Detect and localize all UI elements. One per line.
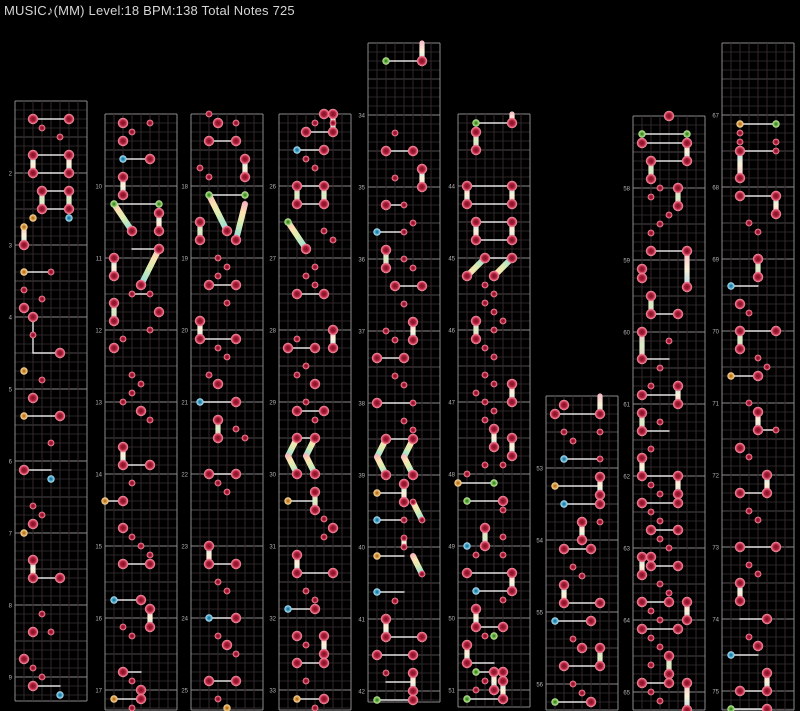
note-pink-large [381, 434, 391, 444]
note-pink-small [392, 130, 399, 137]
note-pink-large [328, 109, 338, 119]
note-pink-small [410, 400, 417, 407]
note-pink-large [762, 614, 772, 624]
note-yellow [454, 479, 461, 486]
note-pink-small [764, 364, 771, 371]
note-pink-large [498, 694, 508, 704]
note-pink-large [145, 622, 155, 632]
note-blue [196, 398, 203, 405]
note-pink-large [118, 190, 128, 200]
note-pink-small [773, 427, 780, 434]
note-pink-small [648, 689, 655, 696]
note-blue [463, 542, 470, 549]
note-pink-small [401, 256, 408, 263]
note-pink-small [233, 651, 240, 658]
measure-number: 41 [358, 618, 365, 624]
note-pink-large [595, 472, 605, 482]
note-yellow [101, 497, 108, 504]
note-pink-large [559, 598, 569, 608]
note-pink-large [471, 604, 481, 614]
note-pink-small [206, 174, 213, 181]
note-pink-small [755, 229, 762, 236]
note-pink-small [215, 579, 222, 586]
note-pink-large [136, 280, 146, 290]
measure-number: 56 [536, 683, 543, 689]
note-pink-small [383, 670, 390, 677]
note-pink-small [215, 255, 222, 262]
note-green [373, 696, 380, 703]
measure-number: 63 [623, 547, 630, 553]
measure-number: 19 [181, 257, 188, 263]
note-pink-large [204, 280, 214, 290]
measure-number: 4 [9, 316, 13, 322]
note-pink-small [129, 633, 136, 640]
chart-canvas: 2345678910111213141516171819202122232425… [0, 0, 800, 711]
note-pink-small [648, 446, 655, 453]
note-pink-large [28, 150, 38, 160]
measure-number: 47 [448, 401, 455, 407]
note-pink-small [129, 390, 136, 397]
note-pink-small [303, 363, 310, 370]
note-pink-large [471, 316, 481, 326]
measure-number: 21 [181, 401, 188, 407]
note-pink-small [482, 399, 489, 406]
measure-number: 71 [712, 402, 719, 408]
note-pink-large [195, 235, 205, 245]
note-pink-small [39, 296, 46, 303]
note-pink-large [595, 490, 605, 500]
note-pink-small [129, 678, 136, 685]
note-pink-large [637, 552, 647, 562]
note-pink-small [579, 690, 586, 697]
note-pink-large [231, 280, 241, 290]
note-pink-small [312, 264, 319, 271]
note-pink-small [597, 456, 604, 463]
song-info-header: MUSIC♪(MM) Level:18 BPM:138 Total Notes … [4, 3, 295, 18]
note-pink-large [673, 525, 683, 535]
note-pink-small [657, 518, 664, 525]
note-pink-small [303, 678, 310, 685]
note-yellow [110, 695, 117, 702]
note-blue [560, 500, 567, 507]
note-pink-small [666, 338, 673, 345]
note-green [490, 479, 497, 486]
note-pink-large [471, 622, 481, 632]
note-pink-large [577, 535, 587, 545]
note-yellow [373, 552, 380, 559]
note-pink-large [417, 164, 427, 174]
note-pink-small [48, 629, 55, 636]
note-pink-large [595, 643, 605, 653]
note-pink-large [292, 289, 302, 299]
note-pink-large [735, 542, 745, 552]
measure-number: 39 [358, 474, 365, 480]
measure-number: 35 [358, 186, 365, 192]
note-pink-large [222, 226, 232, 236]
note-pink-small [30, 665, 37, 672]
note-pink-small [392, 598, 399, 605]
note-green [551, 698, 558, 705]
note-pink-large [231, 397, 241, 407]
note-pink-large [673, 498, 683, 508]
note-pink-large [381, 146, 391, 156]
measure-number: 45 [448, 257, 455, 263]
note-pink-small [147, 327, 154, 334]
note-pink-large [735, 146, 745, 156]
note-pink-small [294, 336, 301, 343]
note-pink-large [292, 181, 302, 191]
note-pink-large [127, 226, 137, 236]
note-pink-small [491, 327, 498, 334]
note-pink-small [737, 130, 744, 137]
note-pink-large [735, 191, 745, 201]
note-pink-large [213, 433, 223, 443]
note-pink-small [737, 139, 744, 146]
note-blue [373, 588, 380, 595]
note-yellow [223, 704, 230, 711]
note-pink-large [559, 661, 569, 671]
note-pink-large [637, 471, 647, 481]
note-pink-large [136, 685, 146, 695]
measure-number: 49 [448, 545, 455, 551]
note-pink-small [401, 517, 408, 524]
note-pink-large [301, 244, 311, 254]
note-pink-small [138, 543, 145, 550]
note-pink-small [482, 282, 489, 289]
note-pink-small [312, 282, 319, 289]
measure-number: 10 [95, 185, 102, 191]
measure-number: 30 [269, 473, 276, 479]
note-pink-small [401, 202, 408, 209]
note-pink-large [240, 172, 250, 182]
measure-number: 38 [358, 402, 365, 408]
note-pink-small [491, 381, 498, 388]
note-pink-large [586, 616, 596, 626]
note-pink-large [735, 344, 745, 354]
note-pink-small [401, 544, 408, 551]
measure-number: 61 [623, 403, 630, 409]
note-pink-large [328, 568, 338, 578]
note-pink-large [753, 641, 763, 651]
measure-number: 14 [95, 473, 102, 479]
note-pink-large [328, 343, 338, 353]
note-pink-small [215, 696, 222, 703]
note-pink-small [482, 633, 489, 640]
measure-number: 7 [9, 532, 13, 538]
note-pink-large [735, 596, 745, 606]
note-pink-large [735, 299, 745, 309]
note-pink-large [637, 327, 647, 337]
note-pink-small [648, 383, 655, 390]
note-pink-large [489, 667, 499, 677]
note-pink-large [399, 479, 409, 489]
note-pink-large [753, 425, 763, 435]
note-pink-large [498, 622, 508, 632]
note-pink-large [417, 182, 427, 192]
note-pink-small [500, 597, 507, 604]
measure-column-8: 5859606162636465 [623, 111, 705, 711]
measure-number: 25 [181, 689, 188, 695]
note-pink-small [21, 287, 28, 294]
note-pink-large [489, 685, 499, 695]
note-pink-large [231, 613, 241, 623]
note-pink-large [646, 525, 656, 535]
measure-number: 2 [9, 172, 13, 178]
note-pink-large [136, 694, 146, 704]
note-pink-small [147, 291, 154, 298]
note-pink-large [319, 145, 329, 155]
measure-number: 74 [712, 618, 719, 624]
note-pink-small [561, 429, 568, 436]
measure-number: 46 [448, 329, 455, 335]
note-pink-large [646, 552, 656, 562]
note-pink-large [213, 118, 223, 128]
note-pink-large [471, 127, 481, 137]
note-pink-large [136, 595, 146, 605]
note-pink-small [597, 429, 604, 436]
measure-number: 16 [95, 617, 102, 623]
note-pink-large [195, 217, 205, 227]
note-pink-small [39, 377, 46, 384]
note-pink-large [408, 650, 418, 660]
note-pink-small [30, 503, 37, 510]
note-pink-small [657, 185, 664, 192]
note-pink-small [39, 611, 46, 618]
note-pink-large [222, 640, 232, 650]
note-pink-large [507, 397, 517, 407]
note-pink-small [464, 471, 471, 478]
note-pink-large [319, 694, 329, 704]
note-pink-small [294, 372, 301, 379]
chart-viewer: 2345678910111213141516171819202122232425… [0, 0, 800, 711]
note-pink-small [482, 678, 489, 685]
note-pink-small [120, 336, 127, 343]
note-pink-large [292, 433, 302, 443]
note-pink-large [292, 469, 302, 479]
note-pink-large [753, 272, 763, 282]
note-green [472, 668, 479, 675]
note-pink-large [372, 650, 382, 660]
measure-number: 8 [9, 604, 13, 610]
note-pink-large [19, 465, 29, 475]
note-pink-small [312, 120, 319, 127]
note-pink-large [145, 559, 155, 569]
note-pink-large [673, 489, 683, 499]
note-blue [551, 617, 558, 624]
note-pink-small [147, 120, 154, 127]
note-pink-large [462, 199, 472, 209]
note-pink-large [637, 138, 647, 148]
measure-number: 36 [358, 258, 365, 264]
note-pink-large [109, 316, 119, 326]
note-pink-large [646, 246, 656, 256]
note-pink-small [570, 438, 577, 445]
note-pink-large [19, 240, 29, 250]
note-pink-large [301, 127, 311, 137]
note-pink-large [762, 686, 772, 696]
note-pink-large [28, 168, 38, 178]
note-pink-large [489, 442, 499, 452]
note-pink-large [682, 246, 692, 256]
note-pink-large [145, 154, 155, 164]
note-pink-large [319, 199, 329, 209]
note-pink-large [471, 217, 481, 227]
note-pink-large [637, 570, 647, 580]
note-pink-large [292, 550, 302, 560]
note-pink-small [755, 517, 762, 524]
note-pink-large [381, 200, 391, 210]
measure-number: 11 [96, 257, 103, 263]
note-pink-large [145, 460, 155, 470]
note-pink-large [381, 470, 391, 480]
note-pink-small [129, 480, 136, 487]
note-pink-large [586, 544, 596, 554]
note-pink-small [648, 482, 655, 489]
note-pink-small [657, 365, 664, 372]
note-pink-small [579, 573, 586, 580]
note-blue [284, 605, 291, 612]
note-pink-large [283, 343, 293, 353]
measure-column-3: 1819202122232425 [181, 111, 263, 711]
note-pink-large [489, 271, 499, 281]
note-pink-large [646, 561, 656, 571]
note-pink-large [673, 183, 683, 193]
measure-number: 12 [95, 329, 102, 335]
note-pink-large [595, 499, 605, 509]
note-pink-small [746, 562, 753, 569]
note-pink-small [746, 634, 753, 641]
note-green [463, 497, 470, 504]
note-pink-small [746, 220, 753, 227]
note-pink-large [595, 661, 605, 671]
note-pink-small [666, 590, 673, 597]
note-blue [110, 596, 117, 603]
note-yellow [20, 529, 27, 536]
note-pink-large [771, 209, 781, 219]
note-pink-large [507, 568, 517, 578]
note-pink-large [399, 497, 409, 507]
note-pink-small [242, 435, 249, 442]
note-pink-large [28, 573, 38, 583]
note-pink-small [224, 588, 231, 595]
note-pink-small [570, 681, 577, 688]
note-pink-small [215, 480, 222, 487]
note-pink-large [762, 704, 772, 711]
note-pink-large [586, 697, 596, 707]
note-pink-large [637, 354, 647, 364]
note-pink-small [755, 571, 762, 578]
note-pink-small [312, 165, 319, 172]
note-pink-large [664, 651, 674, 661]
measure-column-1: 23456789 [9, 101, 87, 701]
note-pink-large [213, 415, 223, 425]
note-pink-small [401, 418, 408, 425]
note-pink-large [204, 559, 214, 569]
note-blue [119, 155, 126, 162]
note-pink-small [500, 534, 507, 541]
note-pink-large [204, 469, 214, 479]
measure-number: 68 [712, 186, 719, 192]
note-pink-large [753, 254, 763, 264]
note-pink-large [408, 695, 418, 705]
note-pink-small [233, 426, 240, 433]
measure-number: 24 [181, 617, 188, 623]
note-pink-small [648, 608, 655, 615]
note-pink-large [328, 523, 338, 533]
note-pink-small [419, 517, 426, 524]
note-pink-large [118, 136, 128, 146]
note-pink-small [491, 291, 498, 298]
note-pink-small [746, 508, 753, 515]
note-pink-small [657, 581, 664, 588]
note-pink-large [498, 676, 508, 686]
note-blue [56, 691, 63, 698]
note-pink-small [215, 633, 222, 640]
measure-number: 23 [181, 545, 188, 551]
note-pink-small [129, 534, 136, 541]
measure-number: 64 [623, 619, 630, 625]
note-green [772, 120, 779, 127]
note-pink-small [500, 552, 507, 559]
measure-number: 62 [623, 475, 630, 481]
note-blue [65, 214, 72, 221]
note-pink-small [57, 134, 64, 141]
note-pink-large [319, 649, 329, 659]
note-pink-large [637, 390, 647, 400]
note-pink-large [577, 517, 587, 527]
note-pink-large [195, 316, 205, 326]
note-pink-large [381, 632, 391, 642]
note-pink-small [120, 624, 127, 631]
note-pink-large [204, 676, 214, 686]
measure-number: 59 [623, 259, 630, 265]
note-pink-large [637, 453, 647, 463]
note-pink-small [482, 345, 489, 352]
note-pink-large [145, 604, 155, 614]
note-pink-large [154, 226, 164, 236]
measure-number: 22 [181, 473, 188, 479]
note-pink-large [682, 705, 692, 711]
note-pink-large [231, 469, 241, 479]
note-pink-large [310, 343, 320, 353]
note-pink-large [19, 654, 29, 664]
note-pink-large [507, 433, 517, 443]
note-pink-small [303, 588, 310, 595]
note-pink-large [109, 271, 119, 281]
note-blue [373, 228, 380, 235]
note-green [638, 130, 645, 137]
note-pink-small [773, 148, 780, 155]
note-pink-large [682, 678, 692, 688]
note-pink-small [129, 129, 136, 136]
note-pink-large [637, 273, 647, 283]
note-pink-small [303, 156, 310, 163]
note-green [727, 705, 734, 711]
note-pink-large [292, 568, 302, 578]
note-pink-large [231, 676, 241, 686]
note-yellow [20, 367, 27, 374]
note-pink-large [637, 408, 647, 418]
note-pink-small [482, 372, 489, 379]
measure-number: 33 [269, 689, 276, 695]
note-pink-large [673, 201, 683, 211]
note-pink-small [215, 345, 222, 352]
note-pink-large [231, 235, 241, 245]
measure-number: 37 [358, 330, 365, 336]
note-pink-large [136, 406, 146, 416]
note-pink-small [746, 310, 753, 317]
note-green [110, 200, 117, 207]
